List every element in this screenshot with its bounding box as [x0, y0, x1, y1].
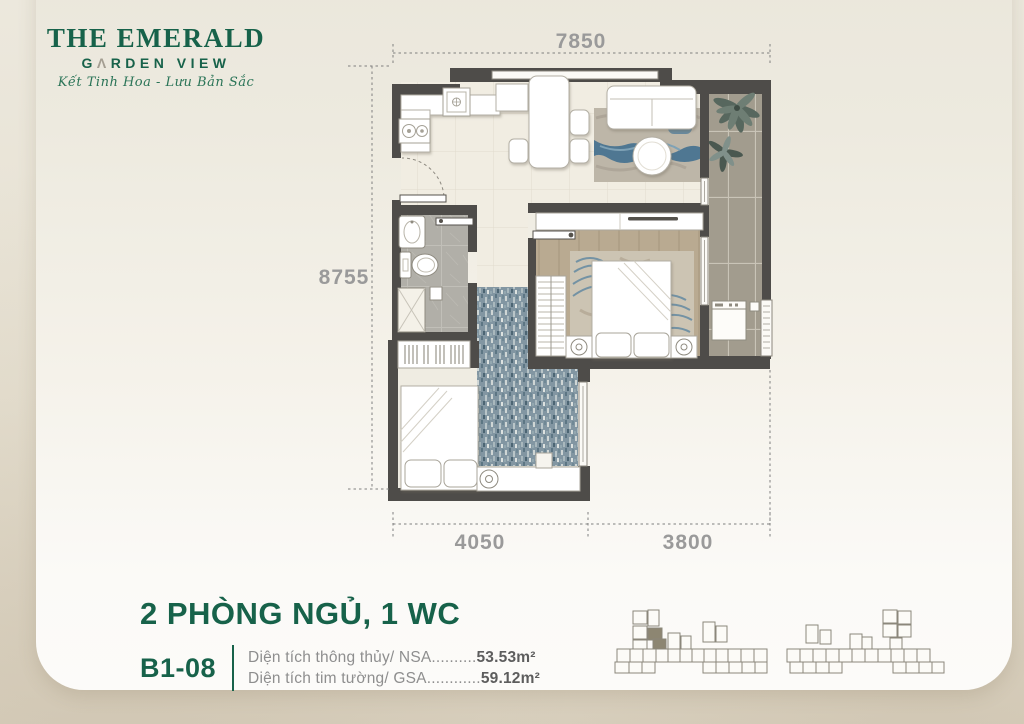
area-gsa-label: Diện tích tim tường/ GSA	[248, 670, 427, 687]
keyplan-unit-highlight	[648, 628, 662, 640]
keyplan-left	[615, 610, 767, 673]
area-lines: Diện tích thông thủy/ NSA..........53.53…	[248, 649, 540, 688]
unit-title: 2 PHÒNG NGỦ, 1 WC	[140, 596, 460, 632]
kitchen-sink	[443, 88, 470, 116]
hall-closet	[398, 341, 470, 368]
tv	[628, 217, 678, 221]
master-wardrobe	[536, 276, 566, 356]
divider	[232, 645, 234, 691]
unit-info: B1-08 Diện tích thông thủy/ NSA.........…	[140, 645, 540, 691]
dimension-bottom-right: 3800	[646, 531, 730, 555]
dimension-left: 8755	[314, 266, 374, 290]
area-gsa-dots: ............	[427, 670, 481, 687]
bedroom2-stool	[536, 453, 552, 468]
corridor-floor	[477, 205, 528, 289]
dining-table	[529, 76, 569, 168]
keyplan-unit-highlight	[653, 639, 666, 649]
floorplan-poster: { "logo":{ "line1":"THE EMERALD", "line2…	[0, 0, 1024, 724]
shower-tray	[398, 288, 425, 332]
keyplan-right	[787, 610, 944, 673]
area-nsa: Diện tích thông thủy/ NSA..........53.53…	[248, 649, 540, 667]
master-door	[533, 231, 575, 239]
stove	[399, 119, 430, 143]
bathroom-bin	[430, 287, 442, 300]
coffee-table	[633, 137, 671, 175]
area-gsa-value: 59.12m²	[481, 670, 540, 687]
toilet	[400, 252, 438, 278]
kitchen-window	[492, 71, 658, 79]
area-nsa-label: Diện tích thông thủy/ NSA	[248, 649, 431, 666]
unit-code: B1-08	[140, 653, 216, 684]
bathroom-door	[436, 218, 473, 225]
area-nsa-value: 53.53m²	[476, 649, 535, 666]
dimension-top: 7850	[539, 30, 623, 54]
area-nsa-dots: ..........	[431, 649, 476, 666]
area-gsa: Diện tích tim tường/ GSA............59.1…	[248, 670, 540, 688]
sofa	[607, 86, 696, 129]
dimension-bottom-left: 4050	[438, 531, 522, 555]
